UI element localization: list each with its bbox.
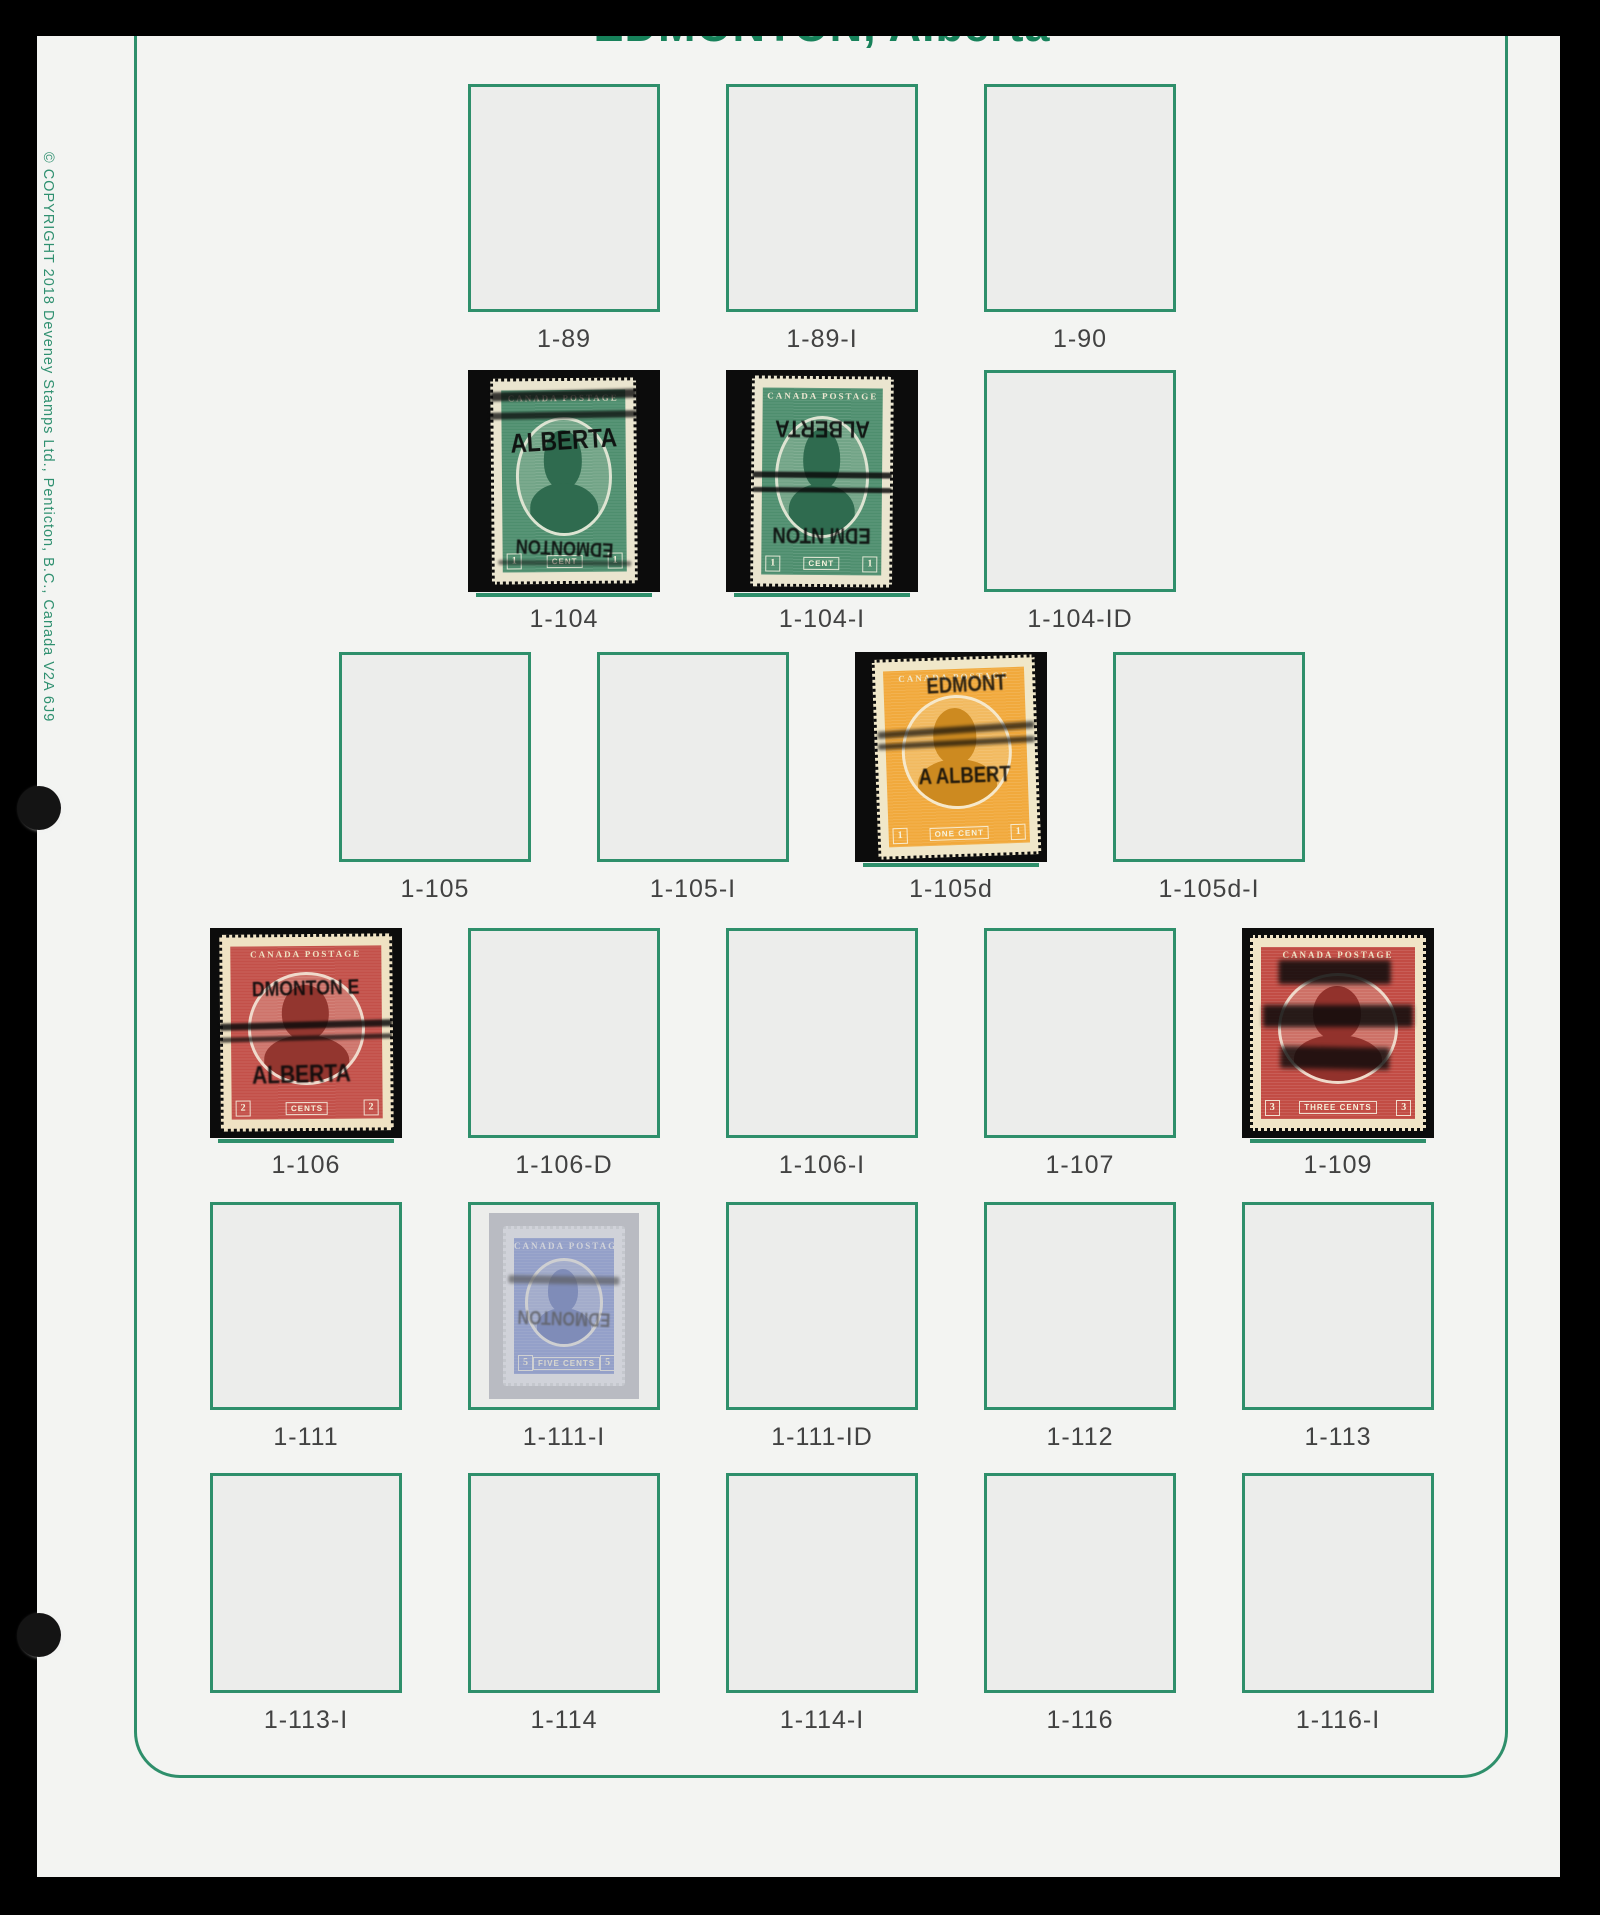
- scan-edge-top: [0, 0, 1600, 36]
- slot-area-1-89: [468, 84, 660, 312]
- stamp-slot-1-104-I: CANADA POSTAGE1CENT1ALBERTAEDM NTON1-104…: [726, 370, 918, 634]
- precancel-overprint: DMONTON EALBERTA: [222, 937, 390, 1130]
- slot-area-1-106-I: [726, 928, 918, 1138]
- stamp-slot-1-90: 1-90: [984, 84, 1176, 354]
- stamp-slot-1-113: 1-113: [1242, 1202, 1434, 1452]
- overprint-bar: [490, 388, 636, 401]
- slot-label: 1-109: [1242, 1151, 1434, 1180]
- slot-label: 1-106-D: [468, 1151, 660, 1180]
- slot-area-1-105: [339, 652, 531, 862]
- stamp-slot-1-105: 1-105: [339, 652, 531, 904]
- slot-area-1-111: [210, 1202, 402, 1410]
- slot-label: 1-89: [468, 325, 660, 354]
- row-4: CANADA POSTAGE2CENTS2DMONTON EALBERTA1-1…: [22, 928, 1600, 1180]
- row-6: 1-113-I1-1141-114-I1-1161-116-I: [22, 1473, 1600, 1735]
- overprint-bar: [1278, 960, 1391, 984]
- slot-label: 1-104-I: [726, 605, 918, 634]
- slot-area-1-114-I: [726, 1473, 918, 1693]
- precancel-overprint: ALBERTAEDMONTON: [493, 380, 635, 582]
- slot-label: 1-105: [339, 875, 531, 904]
- slot-area-1-104-ID: [984, 370, 1176, 592]
- album-page: EDMONTON, Alberta © COPYRIGHT 2018 Deven…: [0, 0, 1600, 1915]
- row-1: 1-891-89-I1-90: [22, 84, 1600, 354]
- slot-label: 1-116-I: [1242, 1706, 1434, 1735]
- slot-label: 1-90: [984, 325, 1176, 354]
- stamp-1-109: CANADA POSTAGE3THREE CENTS3: [1250, 935, 1427, 1130]
- stamp-slot-1-107: 1-107: [984, 928, 1176, 1180]
- stamp-slot-1-111-ID: 1-111-ID: [726, 1202, 918, 1452]
- overprint-text: ALBERTA: [509, 422, 617, 459]
- stamp-slot-1-104: CANADA POSTAGE1CENT1ALBERTAEDMONTON1-104: [468, 370, 660, 634]
- row-2: CANADA POSTAGE1CENT1ALBERTAEDMONTON1-104…: [22, 370, 1600, 634]
- slot-area-1-114: [468, 1473, 660, 1693]
- scan-edge-bottom: [0, 1877, 1600, 1915]
- slot-area-1-105-I: [597, 652, 789, 862]
- overprint-bar: [498, 560, 631, 566]
- slot-label: 1-112: [984, 1423, 1176, 1452]
- overprint-text: ALBERTA: [775, 413, 870, 442]
- slot-label: 1-104: [468, 605, 660, 634]
- stamp-slot-1-114-I: 1-114-I: [726, 1473, 918, 1735]
- slot-area-1-116-I: [1242, 1473, 1434, 1693]
- slot-area-1-106: CANADA POSTAGE2CENTS2DMONTON EALBERTA: [210, 928, 402, 1138]
- overprint-bar: [219, 1034, 393, 1044]
- slot-label: 1-111-I: [468, 1423, 660, 1452]
- slot-area-1-111-ID: [726, 1202, 918, 1410]
- slot-label: 1-114: [468, 1706, 660, 1735]
- stamp-slot-1-114: 1-114: [468, 1473, 660, 1735]
- stamp-slot-1-89: 1-89: [468, 84, 660, 354]
- scan-edge-right: [1560, 0, 1600, 1915]
- stamp-1-111-I: CANADA POSTAGE5FIVE CENTS5EDMONTON: [503, 1226, 625, 1386]
- overprint-text: DMONTON E: [252, 976, 360, 1003]
- binder-hole-top: [17, 786, 61, 830]
- stamp-slot-1-116-I: 1-116-I: [1242, 1473, 1434, 1735]
- slot-label: 1-105-I: [597, 875, 789, 904]
- row-5: 1-111CANADA POSTAGE5FIVE CENTS5EDMONTON1…: [22, 1202, 1600, 1452]
- overprint-bar: [878, 736, 1035, 750]
- overprint-text: EDMONT: [926, 670, 1007, 700]
- slot-area-1-104-I: CANADA POSTAGE1CENT1ALBERTAEDM NTON: [726, 370, 918, 592]
- slot-area-1-112: [984, 1202, 1176, 1410]
- slot-area-1-90: [984, 84, 1176, 312]
- slot-area-1-113-I: [210, 1473, 402, 1693]
- overprint-bar: [508, 1275, 619, 1285]
- stamp-slot-1-104-ID: 1-104-ID: [984, 370, 1176, 634]
- slot-area-1-109: CANADA POSTAGE3THREE CENTS3: [1242, 928, 1434, 1138]
- stamp-slot-1-106: CANADA POSTAGE2CENTS2DMONTON EALBERTA1-1…: [210, 928, 402, 1180]
- slot-area-1-106-D: [468, 928, 660, 1138]
- slot-label: 1-104-ID: [984, 605, 1176, 634]
- stamp-1-104-I: CANADA POSTAGE1CENT1ALBERTAEDM NTON: [750, 375, 894, 587]
- slot-area-1-105d: CANADA POSTAGE1ONE CENT1EDMONTA ALBERT: [855, 652, 1047, 862]
- overprint-text: EDM NTON: [772, 521, 870, 548]
- slot-label: 1-89-I: [726, 325, 918, 354]
- stamp-slot-1-109: CANADA POSTAGE3THREE CENTS31-109: [1242, 928, 1434, 1180]
- overprint-bar: [1263, 1005, 1413, 1027]
- stamp-slot-1-105d: CANADA POSTAGE1ONE CENT1EDMONTA ALBERT1-…: [855, 652, 1047, 904]
- overprint-text: EDMONTON: [515, 534, 614, 561]
- stamp-grid: 1-891-89-I1-90CANADA POSTAGE1CENT1ALBERT…: [0, 0, 1600, 1915]
- overprint-text: A ALBERT: [919, 761, 1012, 790]
- overprint-text: EDMONTON: [517, 1304, 611, 1329]
- slot-label: 1-111-ID: [726, 1423, 918, 1452]
- stamp-1-106: CANADA POSTAGE2CENTS2DMONTON EALBERTA: [219, 934, 394, 1133]
- precancel-overprint: [1253, 938, 1424, 1127]
- overprint-bar: [753, 471, 892, 478]
- stamp-slot-1-116: 1-116: [984, 1473, 1176, 1735]
- slot-label: 1-105d-I: [1113, 875, 1305, 904]
- precancel-overprint: EDMONTA ALBERT: [875, 658, 1039, 857]
- binder-hole-bottom: [17, 1613, 61, 1657]
- slot-label: 1-113-I: [210, 1706, 402, 1735]
- overprint-bar: [752, 486, 891, 492]
- slot-label: 1-114-I: [726, 1706, 918, 1735]
- stamp-slot-1-111-I: CANADA POSTAGE5FIVE CENTS5EDMONTON1-111-…: [468, 1202, 660, 1452]
- slot-area-1-113: [1242, 1202, 1434, 1410]
- stamp-backing: CANADA POSTAGE5FIVE CENTS5EDMONTON: [489, 1213, 639, 1399]
- slot-label: 1-107: [984, 1151, 1176, 1180]
- stamp-1-105d: CANADA POSTAGE1ONE CENT1EDMONTA ALBERT: [872, 654, 1042, 859]
- slot-label: 1-111: [210, 1423, 402, 1452]
- precancel-overprint: ALBERTAEDM NTON: [753, 378, 891, 584]
- slot-area-1-111-I: CANADA POSTAGE5FIVE CENTS5EDMONTON: [468, 1202, 660, 1410]
- stamp-slot-1-113-I: 1-113-I: [210, 1473, 402, 1735]
- stamp-slot-1-111: 1-111: [210, 1202, 402, 1452]
- slot-label: 1-106: [210, 1151, 402, 1180]
- stamp-slot-1-105-I: 1-105-I: [597, 652, 789, 904]
- overprint-bar: [219, 1020, 393, 1032]
- slot-area-1-104: CANADA POSTAGE1CENT1ALBERTAEDMONTON: [468, 370, 660, 592]
- stamp-slot-1-106-I: 1-106-I: [726, 928, 918, 1180]
- slot-area-1-105d-I: [1113, 652, 1305, 862]
- precancel-overprint: EDMONTON: [506, 1229, 622, 1383]
- stamp-slot-1-112: 1-112: [984, 1202, 1176, 1452]
- stamp-slot-1-89-I: 1-89-I: [726, 84, 918, 354]
- overprint-bar: [1280, 1046, 1390, 1070]
- overprint-bar: [489, 410, 637, 420]
- row-3: 1-1051-105-ICANADA POSTAGE1ONE CENT1EDMO…: [22, 652, 1600, 904]
- slot-label: 1-105d: [855, 875, 1047, 904]
- overprint-text: ALBERTA: [252, 1059, 351, 1091]
- slot-area-1-116: [984, 1473, 1176, 1693]
- stamp-slot-1-105d-I: 1-105d-I: [1113, 652, 1305, 904]
- slot-area-1-89-I: [726, 84, 918, 312]
- slot-area-1-107: [984, 928, 1176, 1138]
- stamp-slot-1-106-D: 1-106-D: [468, 928, 660, 1180]
- stamp-1-104: CANADA POSTAGE1CENT1ALBERTAEDMONTON: [490, 377, 638, 585]
- slot-label: 1-116: [984, 1706, 1176, 1735]
- slot-label: 1-106-I: [726, 1151, 918, 1180]
- slot-label: 1-113: [1242, 1423, 1434, 1452]
